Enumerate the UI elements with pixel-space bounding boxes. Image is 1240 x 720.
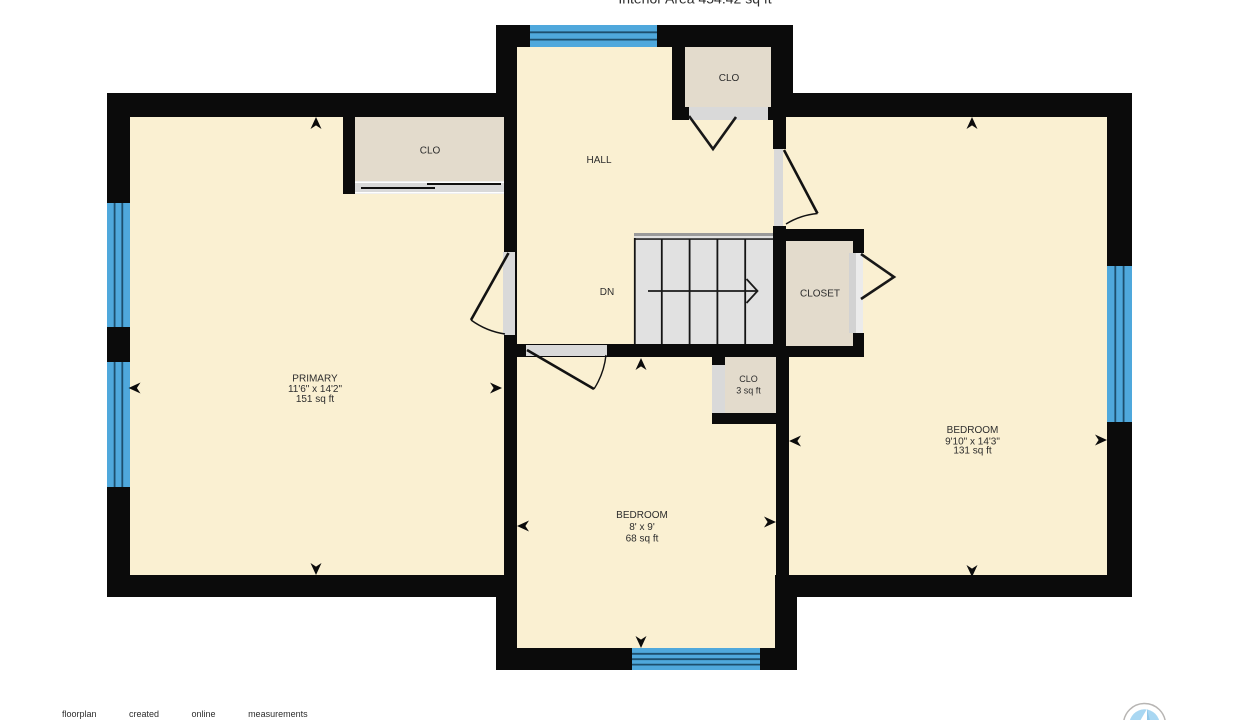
svg-text:131 sq ft: 131 sq ft: [953, 446, 992, 457]
svg-text:151 sq ft: 151 sq ft: [296, 394, 335, 405]
svg-text:HALL: HALL: [586, 155, 611, 166]
svg-text:DN: DN: [600, 287, 614, 298]
svg-text:8' x 9': 8' x 9': [629, 522, 655, 533]
svg-text:BEDROOM: BEDROOM: [947, 425, 999, 436]
svg-text:PRIMARY: PRIMARY: [292, 373, 338, 384]
svg-text:BEDROOM: BEDROOM: [616, 510, 668, 521]
svg-text:3 sq ft: 3 sq ft: [736, 386, 761, 396]
svg-text:Interior Area 454.42 sq ft: Interior Area 454.42 sq ft: [618, 0, 771, 7]
svg-text:CLO: CLO: [739, 374, 758, 384]
svg-text:CLOSET: CLOSET: [800, 289, 840, 300]
svg-text:11'6" x 14'2": 11'6" x 14'2": [288, 384, 343, 395]
svg-text:CLO: CLO: [420, 146, 441, 157]
svg-text:CLO: CLO: [719, 73, 740, 84]
svg-text:floorplan created online measu: floorplan created online measurements: [62, 709, 308, 719]
svg-text:68 sq ft: 68 sq ft: [626, 534, 659, 545]
